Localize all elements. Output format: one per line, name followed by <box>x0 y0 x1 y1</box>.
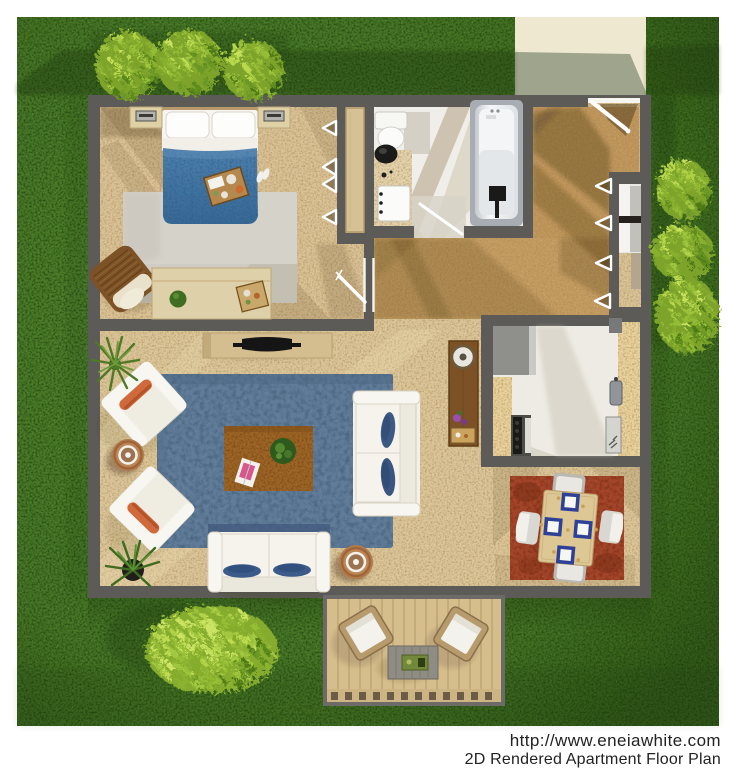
svg-text:http://www.eneiawhite.com: http://www.eneiawhite.com <box>510 731 721 750</box>
svg-text:2D Rendered Apartment Floor Pl: 2D Rendered Apartment Floor Plan <box>465 751 721 768</box>
